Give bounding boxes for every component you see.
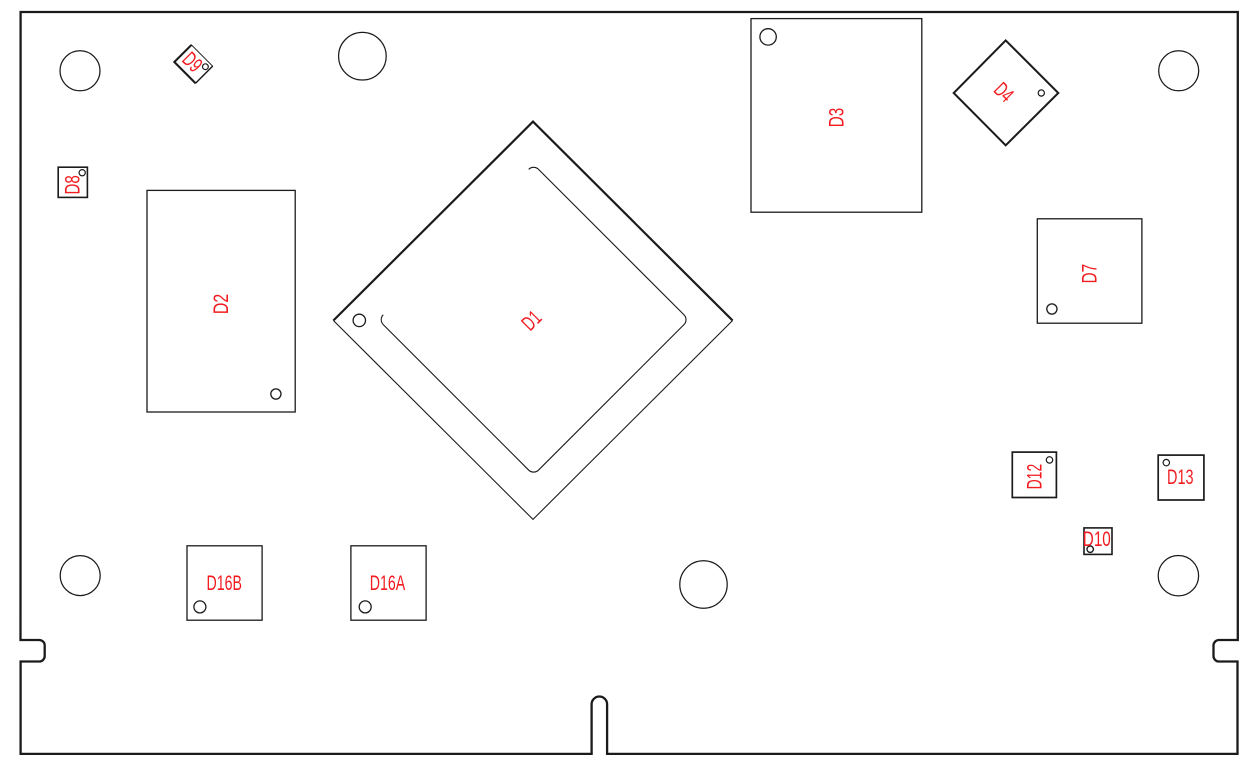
- svg-text:D9: D9: [178, 48, 207, 77]
- svg-text:D10: D10: [1083, 528, 1111, 551]
- svg-text:D8: D8: [62, 175, 85, 194]
- svg-text:D13: D13: [1167, 466, 1194, 489]
- svg-text:D2: D2: [210, 294, 233, 314]
- svg-text:D1: D1: [517, 306, 546, 335]
- svg-text:D7: D7: [1078, 264, 1101, 284]
- svg-text:D4: D4: [989, 78, 1018, 107]
- svg-text:D12: D12: [1023, 464, 1046, 490]
- svg-text:D16B: D16B: [206, 572, 242, 595]
- svg-text:D3: D3: [826, 108, 849, 128]
- svg-text:D16A: D16A: [370, 572, 406, 595]
